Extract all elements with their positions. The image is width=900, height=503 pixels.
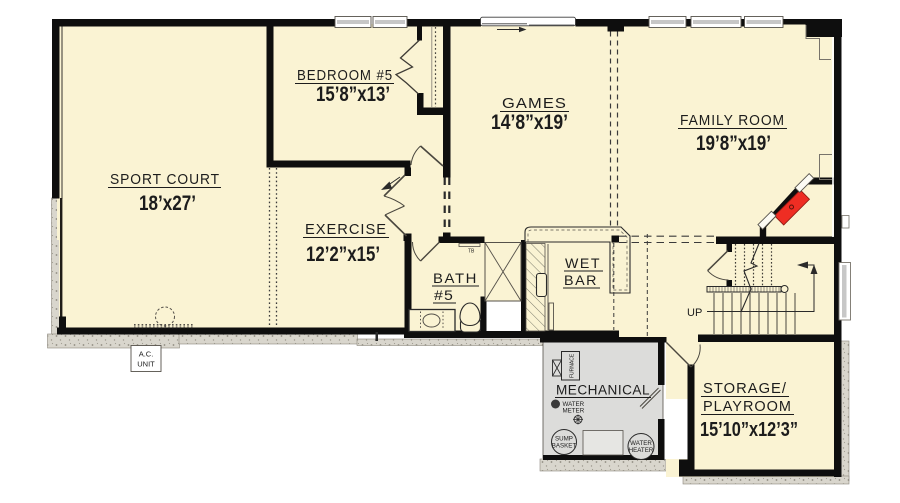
svg-text:METER: METER xyxy=(563,408,585,415)
svg-text:PLAYROOM: PLAYROOM xyxy=(703,399,792,415)
svg-text:GAMES: GAMES xyxy=(502,95,567,112)
svg-text:BATH: BATH xyxy=(433,270,478,286)
svg-text:BEDROOM #5: BEDROOM #5 xyxy=(297,67,393,84)
svg-text:SUMP: SUMP xyxy=(555,436,573,443)
svg-text:WATER: WATER xyxy=(630,440,652,447)
svg-text:SPORT COURT: SPORT COURT xyxy=(110,171,220,188)
svg-text:FAMILY ROOM: FAMILY ROOM xyxy=(680,112,785,129)
svg-text:STORAGE/: STORAGE/ xyxy=(703,381,787,397)
svg-text:BAR: BAR xyxy=(564,272,598,288)
svg-text:#5: #5 xyxy=(434,287,454,303)
svg-text:UNIT: UNIT xyxy=(137,360,155,369)
svg-text:15’8”x13’: 15’8”x13’ xyxy=(316,83,390,106)
svg-text:14’8”x19’: 14’8”x19’ xyxy=(491,111,568,134)
svg-text:EXERCISE: EXERCISE xyxy=(305,221,387,238)
svg-text:HEATER: HEATER xyxy=(629,447,654,454)
svg-text:TB: TB xyxy=(468,249,475,255)
svg-text:MECHANICAL: MECHANICAL xyxy=(556,383,650,398)
svg-text:19’8”x19’: 19’8”x19’ xyxy=(696,132,771,155)
svg-text:WET: WET xyxy=(565,255,601,271)
svg-text:FURNACE: FURNACE xyxy=(570,353,576,378)
svg-text:UP: UP xyxy=(687,307,702,319)
svg-text:12’2”x15’: 12’2”x15’ xyxy=(306,243,380,266)
svg-text:A.C.: A.C. xyxy=(139,350,154,359)
svg-text:15’10”x12’3”: 15’10”x12’3” xyxy=(700,419,798,441)
svg-text:18’x27’: 18’x27’ xyxy=(139,192,196,215)
svg-text:BASKET: BASKET xyxy=(552,443,577,450)
